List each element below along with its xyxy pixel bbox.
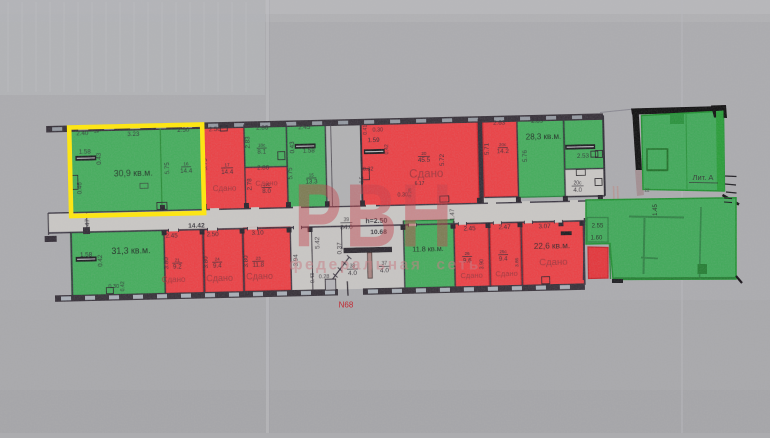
svg-text:N68: N68 — [339, 301, 354, 310]
